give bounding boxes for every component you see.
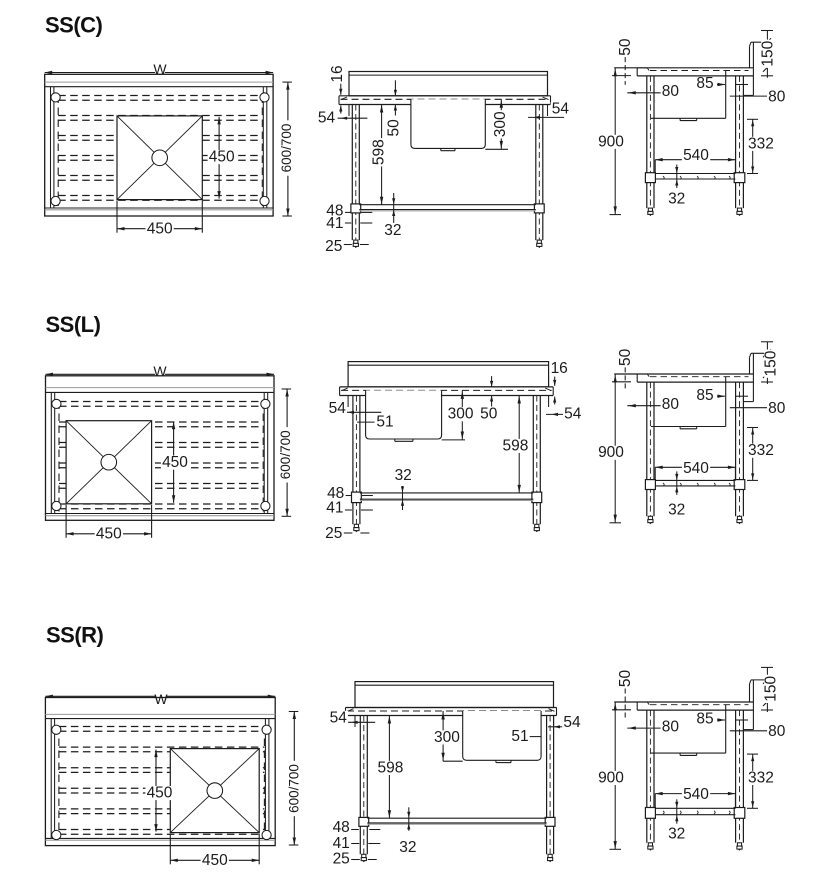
svg-text:32: 32 (668, 191, 685, 208)
svg-text:332: 332 (748, 769, 774, 786)
svg-text:450: 450 (162, 454, 188, 471)
svg-text:50: 50 (617, 348, 634, 366)
svg-text:80: 80 (662, 83, 680, 100)
svg-text:300: 300 (434, 729, 460, 746)
svg-text:598: 598 (370, 139, 387, 165)
svg-text:300: 300 (448, 406, 474, 423)
svg-text:300: 300 (492, 111, 509, 137)
svg-text:332: 332 (748, 135, 774, 152)
svg-text:54: 54 (329, 400, 347, 417)
svg-text:16: 16 (551, 360, 568, 377)
svg-text:332: 332 (748, 442, 774, 459)
svg-text:16: 16 (329, 65, 346, 82)
svg-text:80: 80 (768, 88, 786, 105)
svg-text:80: 80 (662, 718, 680, 735)
svg-text:450: 450 (147, 785, 173, 802)
svg-text:598: 598 (502, 437, 528, 454)
svg-text:450: 450 (147, 221, 173, 238)
svg-text:600/700: 600/700 (279, 124, 294, 173)
svg-text:150: 150 (760, 40, 777, 66)
svg-text:54: 54 (563, 714, 581, 731)
svg-text:900: 900 (598, 133, 624, 150)
svg-text:450: 450 (202, 852, 228, 869)
svg-text:41: 41 (326, 215, 343, 232)
svg-text:600/700: 600/700 (286, 764, 301, 813)
svg-text:25: 25 (325, 525, 342, 542)
svg-text:25: 25 (325, 238, 342, 255)
svg-text:80: 80 (662, 396, 680, 413)
svg-text:540: 540 (683, 786, 709, 803)
svg-text:W: W (153, 363, 167, 379)
svg-text:85: 85 (696, 75, 713, 92)
svg-text:85: 85 (696, 711, 713, 728)
svg-text:600/700: 600/700 (278, 430, 293, 479)
svg-text:540: 540 (683, 460, 709, 477)
svg-text:51: 51 (511, 728, 528, 745)
svg-text:450: 450 (96, 526, 122, 543)
svg-text:900: 900 (598, 769, 624, 786)
svg-text:32: 32 (395, 467, 412, 484)
svg-text:54: 54 (330, 709, 348, 726)
svg-text:48: 48 (333, 819, 350, 836)
svg-text:50: 50 (617, 38, 634, 56)
svg-text:54: 54 (564, 406, 582, 423)
svg-text:25: 25 (333, 851, 350, 868)
svg-text:51: 51 (376, 414, 393, 431)
svg-text:41: 41 (326, 499, 343, 516)
svg-text:41: 41 (333, 835, 350, 852)
svg-text:32: 32 (384, 222, 401, 239)
svg-text:50: 50 (386, 119, 403, 137)
svg-text:150: 150 (763, 675, 780, 701)
svg-text:54: 54 (318, 110, 336, 127)
svg-text:598: 598 (377, 759, 403, 776)
svg-text:32: 32 (668, 502, 685, 519)
svg-text:80: 80 (768, 723, 786, 740)
svg-text:80: 80 (768, 400, 786, 417)
svg-text:450: 450 (209, 149, 235, 166)
svg-text:50: 50 (480, 405, 498, 422)
svg-text:150: 150 (763, 350, 780, 376)
svg-text:SS(L): SS(L) (46, 312, 101, 337)
svg-text:W: W (154, 691, 168, 707)
svg-text:85: 85 (696, 387, 713, 404)
svg-text:SS(C): SS(C) (45, 13, 103, 38)
svg-text:SS(R): SS(R) (46, 623, 104, 648)
svg-text:900: 900 (598, 444, 624, 461)
svg-text:50: 50 (617, 670, 634, 688)
svg-text:32: 32 (668, 825, 685, 842)
svg-text:540: 540 (683, 147, 709, 164)
svg-text:54: 54 (552, 101, 570, 118)
svg-text:32: 32 (399, 839, 416, 856)
